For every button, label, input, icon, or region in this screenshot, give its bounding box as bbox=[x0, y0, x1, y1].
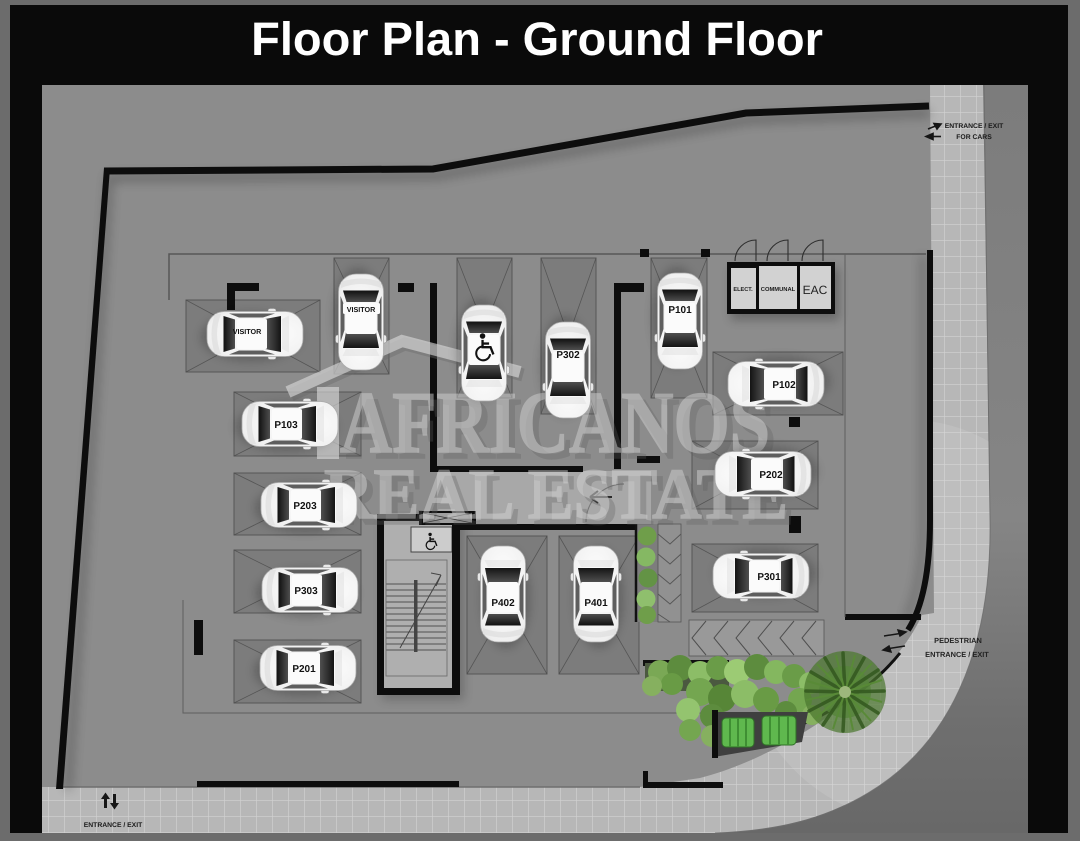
svg-text:ENTRANCE / EXIT: ENTRANCE / EXIT bbox=[84, 822, 143, 829]
svg-text:EAC: EAC bbox=[803, 283, 828, 297]
svg-text:P203: P203 bbox=[293, 501, 317, 512]
svg-text:ENTRANCE / EXIT: ENTRANCE / EXIT bbox=[945, 123, 1004, 130]
svg-text:P402: P402 bbox=[491, 598, 515, 609]
svg-text:P101: P101 bbox=[668, 305, 692, 316]
svg-text:PEDESTRIAN: PEDESTRIAN bbox=[934, 636, 982, 645]
svg-text:P302: P302 bbox=[556, 350, 580, 361]
svg-text:P401: P401 bbox=[584, 598, 608, 609]
svg-text:P301: P301 bbox=[757, 572, 781, 583]
svg-text:P103: P103 bbox=[274, 420, 298, 431]
svg-text:ENTRANCE / EXIT: ENTRANCE / EXIT bbox=[925, 650, 989, 659]
svg-text:P201: P201 bbox=[292, 664, 316, 675]
svg-text:VISITOR: VISITOR bbox=[233, 327, 262, 336]
svg-text:Floor Plan - Ground Floor: Floor Plan - Ground Floor bbox=[251, 12, 823, 65]
svg-text:FOR CARS: FOR CARS bbox=[956, 134, 992, 141]
svg-text:P303: P303 bbox=[294, 586, 318, 597]
svg-text:VISITOR: VISITOR bbox=[347, 305, 376, 314]
svg-text:ELECT.: ELECT. bbox=[733, 287, 753, 293]
svg-text:P102: P102 bbox=[772, 380, 796, 391]
svg-text:COMMUNAL: COMMUNAL bbox=[761, 286, 796, 293]
svg-text:P202: P202 bbox=[759, 470, 783, 481]
